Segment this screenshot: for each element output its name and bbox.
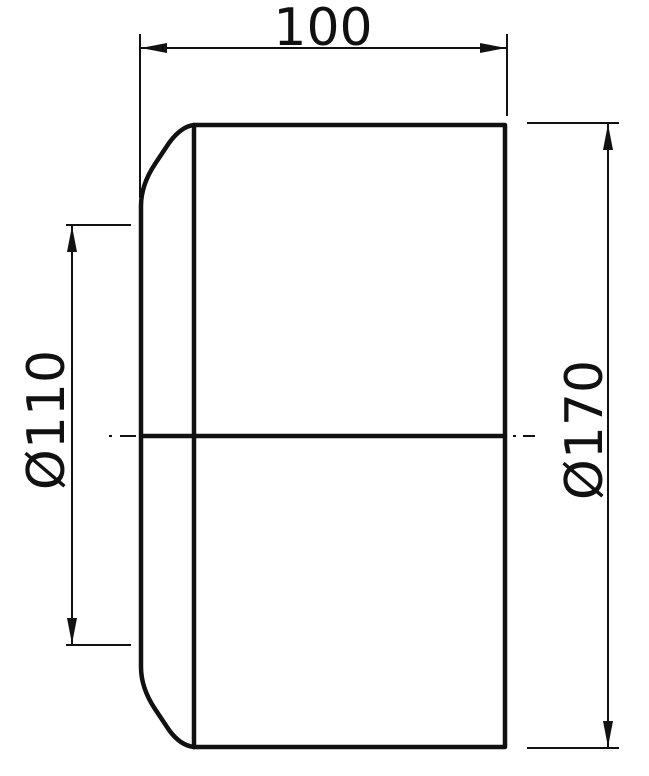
dim-length-arrow-left <box>141 43 167 53</box>
technical-drawing-svg: 100 Ø110 Ø170 <box>0 0 649 776</box>
dim-length-label: 100 <box>273 0 372 58</box>
dim-inner-diameter: Ø110 <box>17 225 131 645</box>
dim-inner-arrow-top <box>67 226 77 252</box>
dim-outer-label: Ø170 <box>555 360 615 500</box>
dim-length-arrow-right <box>480 43 506 53</box>
dim-outer-arrow-bottom <box>603 721 613 747</box>
dim-outer-diameter: Ø170 <box>527 123 619 748</box>
drawing-canvas: 100 Ø110 Ø170 <box>0 0 649 776</box>
part-outline <box>141 125 505 747</box>
dim-inner-label: Ø110 <box>17 350 77 490</box>
dim-outer-arrow-top <box>603 124 613 150</box>
dim-inner-arrow-bottom <box>67 618 77 644</box>
